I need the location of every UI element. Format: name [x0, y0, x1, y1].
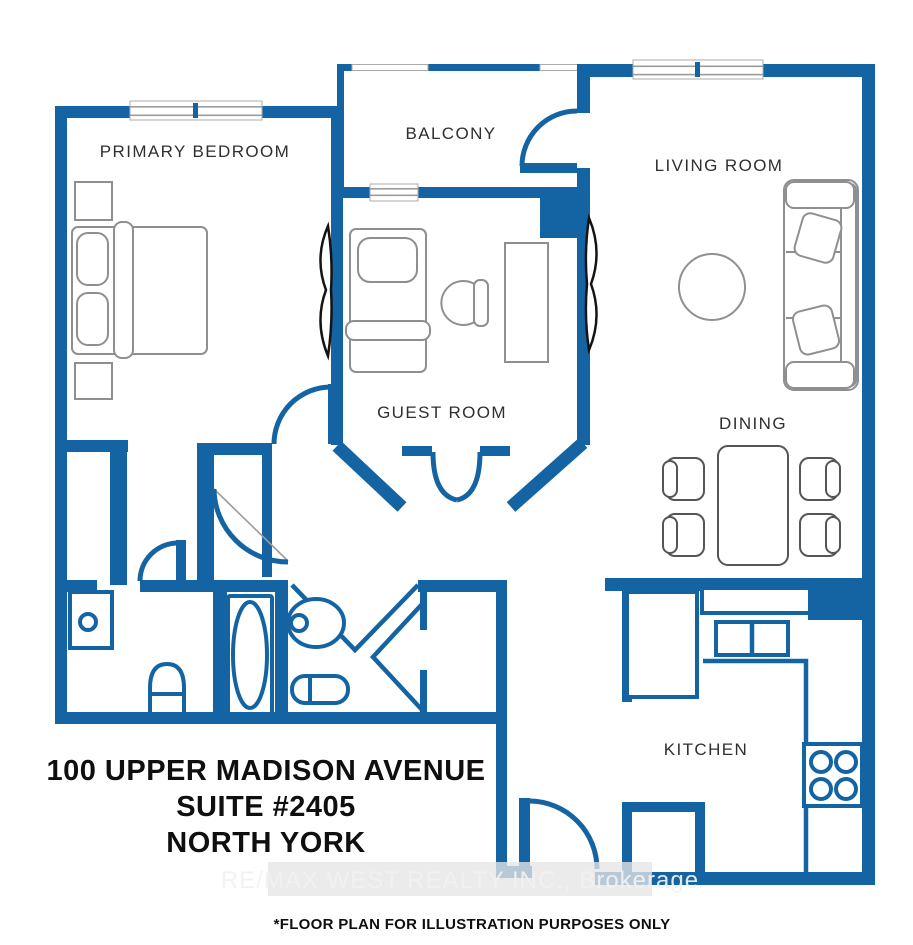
desk-chair	[441, 280, 488, 326]
sofa	[784, 180, 858, 390]
hall-door	[214, 489, 288, 562]
bathroom-sink	[70, 592, 112, 648]
nightstand	[75, 182, 112, 220]
room-label-balcony: BALCONY	[405, 124, 496, 143]
kitchen-double-sink	[716, 622, 788, 655]
dining-chair	[663, 458, 704, 500]
guest-room-window	[370, 184, 418, 201]
bathroom-sink-oval	[288, 599, 344, 647]
bed-headboard	[114, 222, 133, 358]
dining-set	[663, 446, 840, 565]
primary-bedroom-door	[274, 384, 338, 444]
single-bed	[346, 229, 430, 372]
pillow	[77, 233, 108, 285]
disclaimer-text: *FLOOR PLAN FOR ILLUSTRATION PURPOSES ON…	[274, 916, 671, 933]
kitchen-counter-top	[702, 588, 810, 613]
address-line-2: SUITE #2405	[176, 791, 356, 823]
room-label-living-room: LIVING ROOM	[655, 156, 784, 175]
pillow	[77, 293, 108, 345]
curtain-icon	[320, 226, 331, 356]
furniture	[72, 180, 858, 565]
dining-chair	[663, 514, 704, 556]
toilet	[292, 676, 348, 703]
entry-door	[519, 798, 597, 873]
curtain-icon	[586, 218, 597, 350]
room-label-primary-bedroom: PRIMARY BEDROOM	[100, 142, 290, 161]
address-line-3: NORTH YORK	[166, 827, 365, 859]
nightstand	[75, 363, 112, 399]
dining-chair	[800, 514, 840, 556]
dining-chair	[800, 458, 840, 500]
room-label-guest-room: GUEST ROOM	[377, 403, 507, 422]
bathroom-door	[140, 540, 186, 582]
watermark-text: RE/MAX WEST REALTY INC., Brokerage	[221, 867, 699, 894]
living-room-window	[633, 60, 763, 79]
fridge	[627, 592, 697, 697]
double-bed	[72, 222, 207, 358]
balcony-door	[520, 111, 577, 173]
toilet	[150, 664, 184, 712]
dining-table	[718, 446, 788, 565]
bedroom-window	[130, 101, 262, 120]
watermark: RE/MAX WEST REALTY INC., Brokerage	[221, 862, 699, 896]
floor-plan-page: PRIMARY BEDROOM BALCONY LIVING ROOM GUES…	[0, 0, 913, 945]
pillow	[358, 238, 417, 282]
stove	[804, 744, 862, 806]
kitchen-counter-edge	[703, 661, 806, 872]
guest-room-double-door	[402, 446, 510, 500]
room-label-kitchen: KITCHEN	[664, 740, 748, 759]
address-block: 100 UPPER MADISON AVENUE SUITE #2405 NOR…	[46, 755, 485, 859]
bed-blanket-bar	[346, 321, 430, 340]
room-label-dining: DINING	[719, 414, 787, 433]
floor-plan: PRIMARY BEDROOM BALCONY LIVING ROOM GUES…	[0, 0, 913, 945]
round-coffee-table	[679, 254, 745, 320]
desk	[505, 243, 548, 362]
address-line-1: 100 UPPER MADISON AVENUE	[46, 755, 485, 787]
bathtub	[228, 596, 272, 714]
